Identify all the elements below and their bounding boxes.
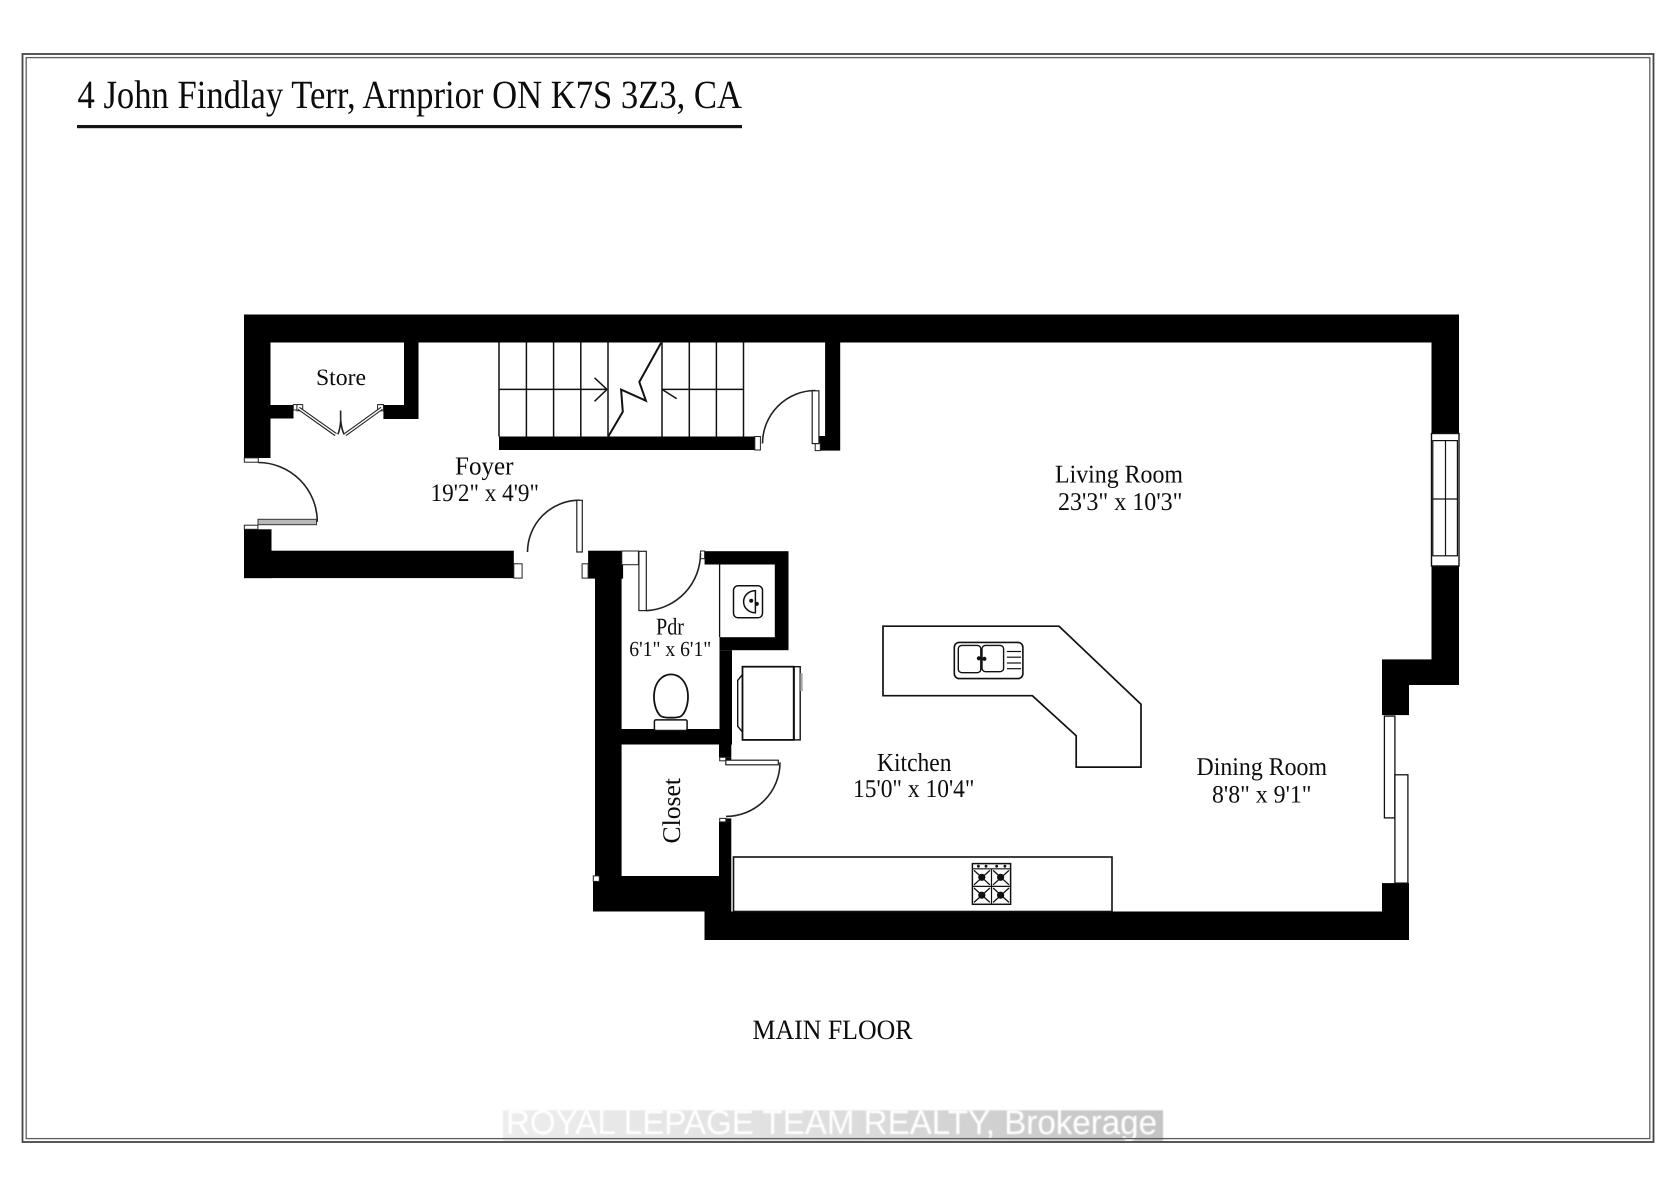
svg-text:19'2" x 4'9": 19'2" x 4'9" [431, 480, 540, 507]
svg-text:ROYAL LEPAGE TEAM REALTY, Brok: ROYAL LEPAGE TEAM REALTY, Brokerage [506, 1104, 1157, 1142]
svg-text:Foyer: Foyer [455, 452, 514, 481]
svg-text:8'8" x 9'1": 8'8" x 9'1" [1212, 781, 1312, 808]
svg-text:Dining Room: Dining Room [1197, 752, 1328, 781]
svg-text:Kitchen: Kitchen [877, 748, 952, 777]
svg-text:6'1" x 6'1": 6'1" x 6'1" [629, 637, 711, 661]
svg-text:MAIN FLOOR: MAIN FLOOR [753, 1015, 913, 1046]
svg-text:15'0" x 10'4": 15'0" x 10'4" [853, 774, 975, 803]
svg-text:23'3" x 10'3": 23'3" x 10'3" [1058, 487, 1183, 516]
svg-text:Store: Store [316, 365, 366, 391]
svg-text:Closet: Closet [657, 778, 686, 844]
svg-text:4 John Findlay Terr, Arnprior: 4 John Findlay Terr, Arnprior ON K7S 3Z3… [78, 72, 743, 117]
svg-text:Living Room: Living Room [1055, 460, 1183, 489]
